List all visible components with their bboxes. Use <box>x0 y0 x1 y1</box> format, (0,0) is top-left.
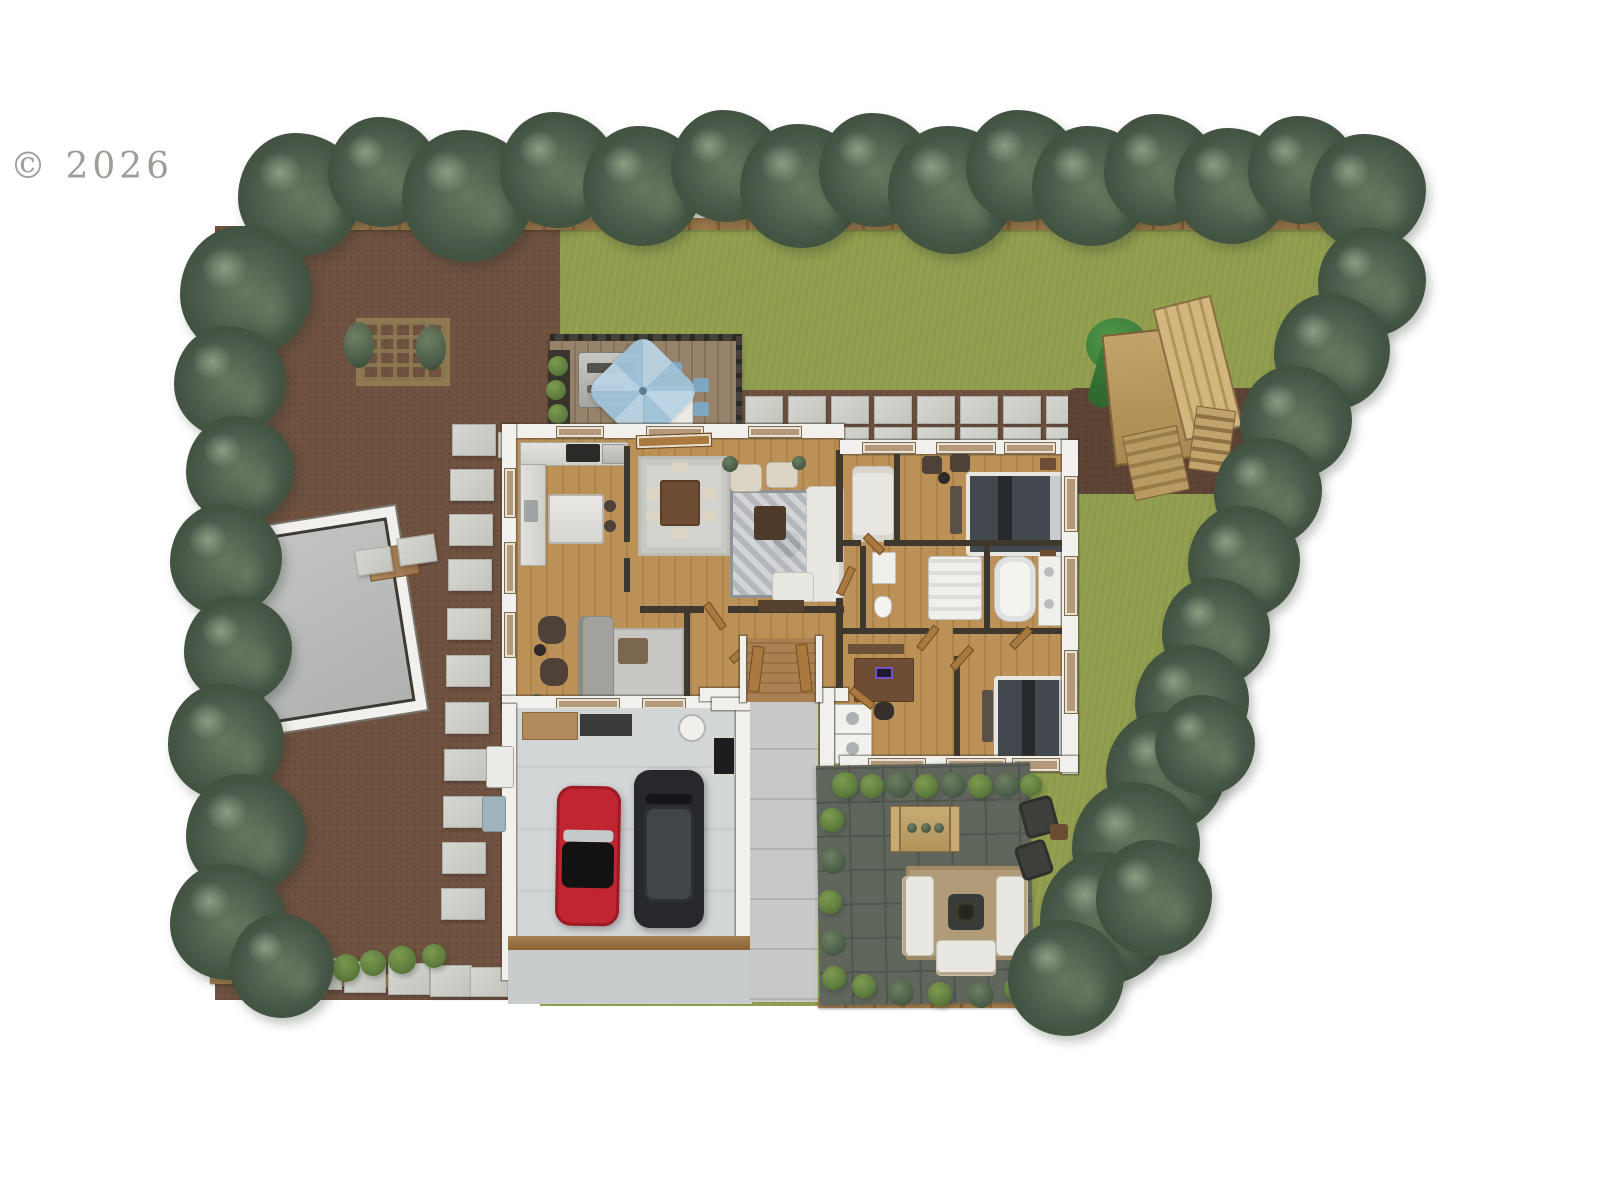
bush <box>914 774 938 798</box>
stepping-stone <box>441 888 485 920</box>
garage-floor <box>516 708 738 952</box>
interior-wall <box>624 558 630 592</box>
stepping-stone <box>443 796 487 828</box>
stepping-stone <box>450 469 494 501</box>
water-heater <box>678 714 706 742</box>
island-stool <box>604 520 616 532</box>
interior-wall <box>836 450 843 562</box>
driveway <box>508 950 752 1004</box>
bush <box>360 950 386 976</box>
bush <box>852 974 876 998</box>
ac-unit <box>482 796 506 832</box>
kitchen-island <box>548 494 604 544</box>
bush <box>388 946 416 974</box>
electrical-panel <box>712 736 736 776</box>
paver <box>917 396 955 424</box>
planter-flowers <box>548 356 568 376</box>
stepping-stone <box>444 749 488 781</box>
window <box>504 542 516 594</box>
interior-wall <box>984 546 990 632</box>
refrigerator <box>602 444 626 464</box>
patio-side-table <box>1050 824 1068 840</box>
picnic-bench <box>950 806 960 852</box>
window <box>862 442 916 454</box>
potted-plant <box>722 456 738 472</box>
picnic-table <box>900 806 950 852</box>
picnic-bench <box>890 806 900 852</box>
dining-chair <box>646 510 659 522</box>
deck-chair <box>693 378 709 392</box>
interior-wall <box>954 656 960 762</box>
suv-windshield <box>646 794 692 804</box>
bush <box>818 890 842 914</box>
bush <box>422 944 446 968</box>
interior-wall <box>953 628 1068 634</box>
pine-tree <box>1155 695 1255 795</box>
bush <box>928 982 952 1006</box>
porch-wall <box>740 636 746 702</box>
bush <box>968 982 994 1008</box>
bush <box>332 954 360 982</box>
mudroom-bench <box>522 712 578 740</box>
dining-chair <box>672 462 688 473</box>
interior-wall <box>894 454 900 542</box>
pine-tree <box>1096 840 1212 956</box>
paver <box>1003 396 1041 424</box>
bush <box>820 808 844 832</box>
washer-door <box>846 712 859 725</box>
bush <box>888 980 914 1006</box>
bush <box>968 774 992 798</box>
bush <box>1020 774 1042 796</box>
dining-chair <box>672 528 688 539</box>
window <box>1004 442 1056 454</box>
window <box>504 468 516 518</box>
window <box>1064 650 1078 714</box>
kitchen-range <box>566 444 600 462</box>
pine-tree <box>1008 920 1124 1036</box>
stepping-stone <box>449 514 493 546</box>
garage-door-threshold <box>508 936 752 950</box>
porch-wall <box>816 636 822 702</box>
pergola-vine <box>416 326 446 370</box>
bush <box>994 772 1020 798</box>
sitting-chair <box>540 658 568 686</box>
table-plant <box>907 823 917 833</box>
stepping-stone <box>396 533 438 566</box>
stepping-stone <box>447 608 491 640</box>
dining-table <box>660 480 700 526</box>
paver <box>874 396 912 424</box>
site-plan-rendering: © 2026 <box>0 0 1600 1200</box>
stepping-stone <box>430 965 472 997</box>
dining-chair <box>646 488 659 500</box>
sliding-door-frame <box>636 433 712 450</box>
bed-bench <box>950 486 962 534</box>
car-windshield <box>563 830 613 843</box>
copyright-watermark: © 2026 <box>10 146 173 187</box>
paver <box>745 396 783 424</box>
table-plant <box>921 823 931 833</box>
fire-pit <box>948 894 984 930</box>
toilet <box>874 596 892 618</box>
computer-monitor <box>875 667 893 679</box>
coffee-table <box>754 506 786 540</box>
black-suv <box>634 770 704 928</box>
bush <box>886 772 912 798</box>
paver <box>788 396 826 424</box>
island-stool <box>604 500 616 512</box>
stepping-stone <box>354 546 393 577</box>
bush <box>820 848 846 874</box>
interior-wall <box>843 628 929 634</box>
interior-wall <box>836 598 843 688</box>
sink <box>1044 599 1054 609</box>
table-plant <box>934 823 944 833</box>
interior-wall <box>624 446 630 542</box>
window <box>1064 476 1078 532</box>
bush <box>832 772 858 798</box>
bush <box>820 930 846 956</box>
sofa-chaise <box>772 572 814 602</box>
stepping-stone <box>442 842 486 874</box>
umbrella-pole <box>637 385 648 396</box>
bed-throw <box>1022 680 1035 756</box>
sitting-chair <box>538 616 566 644</box>
entry-walkway <box>750 700 818 1002</box>
red-classic-car <box>555 785 621 926</box>
bath-vanity <box>872 552 896 584</box>
bush <box>940 772 966 798</box>
deck-chair <box>693 402 709 416</box>
window <box>748 426 802 438</box>
sitting-sofa <box>578 616 614 704</box>
planter-flowers <box>548 404 568 424</box>
bedroom-side-table <box>938 472 950 484</box>
outdoor-sofa <box>902 876 934 956</box>
interior-wall <box>843 540 861 546</box>
shower <box>928 556 982 620</box>
bathtub <box>994 556 1036 622</box>
kitchen-sink <box>524 500 538 522</box>
bed-throw <box>998 476 1012 544</box>
nightstand <box>1040 458 1056 470</box>
planter-flowers <box>546 380 566 400</box>
washer <box>834 704 872 734</box>
window <box>1064 556 1078 616</box>
exterior-wall <box>820 688 834 772</box>
stepping-stone <box>452 424 496 456</box>
garage-mat <box>580 714 632 736</box>
sink <box>1044 567 1054 577</box>
interior-wall <box>860 546 866 632</box>
car-cabin <box>561 842 614 889</box>
desk-chair <box>874 702 894 720</box>
bookshelf <box>848 644 904 654</box>
bush <box>822 966 846 990</box>
stepping-stone <box>448 559 492 591</box>
double-vanity <box>1038 556 1062 626</box>
suv-roof <box>644 806 694 902</box>
window-daybed <box>852 466 894 542</box>
potted-plant <box>792 456 806 470</box>
bed-bench <box>982 690 993 742</box>
bedroom-chair <box>922 456 942 474</box>
stepping-stone <box>446 655 490 687</box>
ac-unit <box>486 746 514 788</box>
pine-tree <box>230 914 334 1018</box>
stepping-stone <box>445 702 489 734</box>
media-console <box>758 600 804 612</box>
outdoor-loveseat <box>936 940 996 976</box>
paver <box>831 396 869 424</box>
dining-chair <box>703 510 716 522</box>
window <box>556 426 604 438</box>
sitting-coffee-table <box>618 638 648 664</box>
interior-wall <box>884 540 1068 546</box>
fire-pit-bowl <box>957 903 975 921</box>
window <box>504 612 516 658</box>
dryer-door <box>846 742 859 755</box>
bedroom-chair <box>950 454 970 472</box>
interior-wall <box>684 613 690 697</box>
paver <box>960 396 998 424</box>
side-table <box>534 644 546 656</box>
interior-wall <box>640 606 704 613</box>
bush <box>860 774 884 798</box>
dining-chair <box>703 488 716 500</box>
pergola-vine <box>344 322 374 368</box>
window <box>936 442 996 454</box>
